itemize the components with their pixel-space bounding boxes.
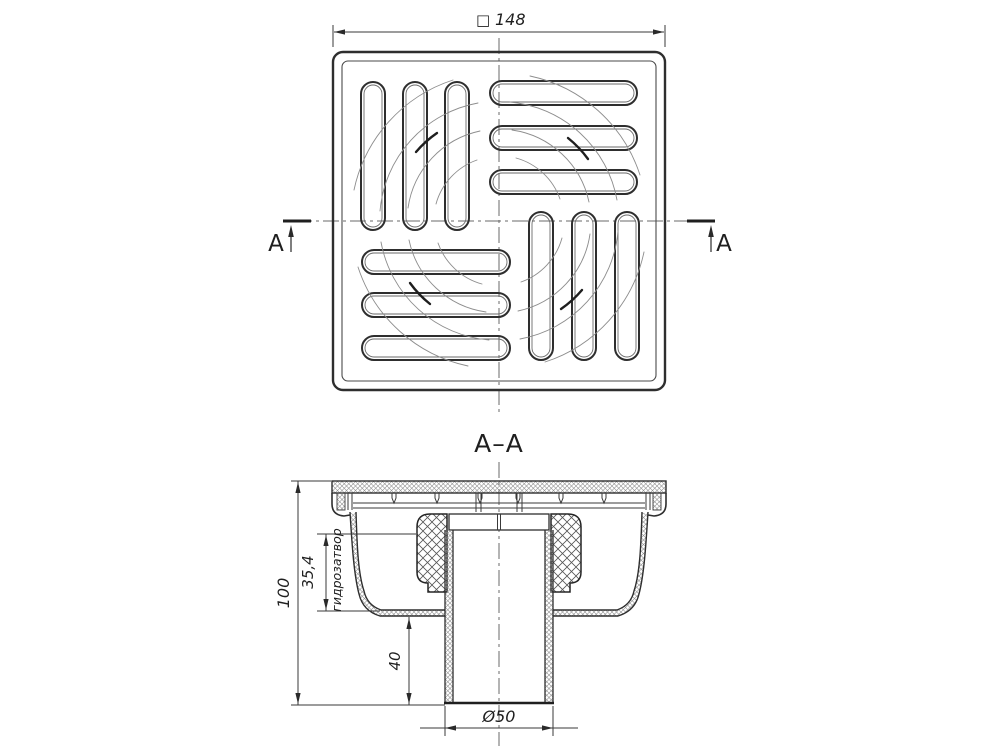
arrowhead xyxy=(542,725,553,730)
square-dimension-value: 148 xyxy=(495,10,526,29)
section-marker-letter: A xyxy=(716,231,732,257)
grate-slot xyxy=(615,212,639,360)
grate-slot xyxy=(445,82,469,230)
arrowhead xyxy=(406,618,411,629)
water-seal-label: гидрозатвор xyxy=(329,528,344,612)
section-marker-letter: A xyxy=(268,231,284,257)
grate-slot xyxy=(361,82,385,230)
water-seal-height-value: 35,4 xyxy=(299,555,317,588)
arrowhead xyxy=(406,693,411,704)
grate-slot xyxy=(362,293,510,317)
grate-plate xyxy=(332,481,666,493)
grate-slot xyxy=(572,212,596,360)
pipe-wall-hatch xyxy=(545,530,553,703)
grate-end-cap xyxy=(337,493,345,510)
section-marker-left: A xyxy=(268,221,311,257)
overall-height-value: 100 xyxy=(274,578,293,609)
arrowhead xyxy=(653,29,664,34)
pipe-wall-hatch xyxy=(445,530,453,703)
arrowhead xyxy=(323,599,328,610)
bell-wall xyxy=(551,514,581,592)
bell-wall xyxy=(417,514,447,592)
section-marker-right: A xyxy=(687,221,732,257)
dimension-outlet-length-40: 40 xyxy=(386,617,412,705)
grate-slot xyxy=(362,250,510,274)
arrowhead xyxy=(334,29,345,34)
section-view: A–A xyxy=(274,429,666,746)
arrowhead xyxy=(295,693,300,704)
drawing-canvas: □ 148 A A A–A xyxy=(0,0,1000,750)
pipe-inlet-funnel xyxy=(449,514,549,530)
arrowhead xyxy=(323,535,328,546)
view-direction-arrowhead xyxy=(708,225,714,237)
view-direction-arrowhead xyxy=(288,225,294,237)
outlet-length-value: 40 xyxy=(386,651,404,670)
grate-end-cap xyxy=(653,493,661,510)
top-view: □ 148 A A xyxy=(268,10,732,412)
section-title: A–A xyxy=(474,429,524,458)
square-dimension-symbol: □ xyxy=(476,11,490,29)
dimension-outlet-diameter-50: Ø50 xyxy=(420,706,578,736)
grate-slot xyxy=(529,212,553,360)
arrowhead xyxy=(295,482,300,493)
grate-slot xyxy=(490,81,637,105)
outlet-diameter-value: Ø50 xyxy=(482,707,516,726)
arrowhead xyxy=(445,725,456,730)
grate-slot xyxy=(403,82,427,230)
top-view-centerlines xyxy=(296,38,702,412)
technical-drawing: □ 148 A A A–A xyxy=(0,0,1000,750)
